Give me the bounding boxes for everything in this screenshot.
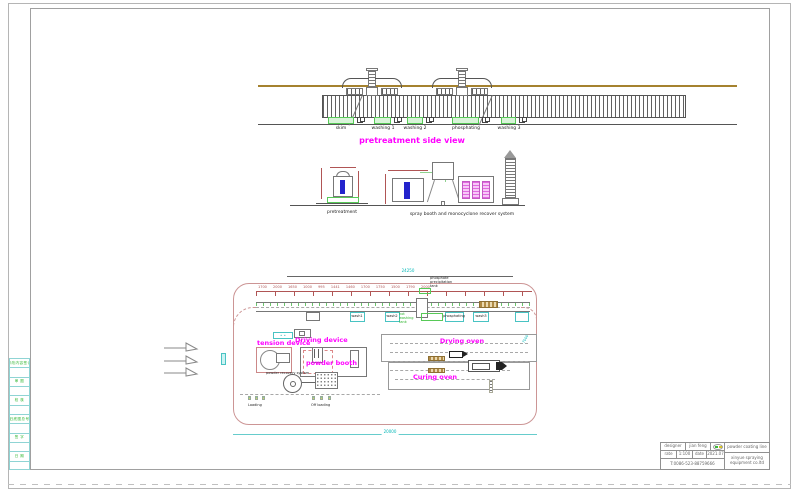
tank-skim <box>328 117 354 124</box>
fan-box <box>366 87 378 96</box>
strip-label: 日 期 <box>10 452 29 461</box>
tank-washing2 <box>407 117 423 124</box>
filter-box <box>471 88 488 95</box>
driving-label: Driving device <box>295 337 348 344</box>
stack-cap <box>366 68 378 71</box>
strip-label: 审 图 <box>10 378 29 387</box>
dim-line-total <box>287 276 513 277</box>
loading-label: Loading <box>248 403 262 407</box>
tank-washing1 <box>374 117 391 124</box>
pump-icon <box>394 117 400 123</box>
filter-box <box>436 88 453 95</box>
phosphate-note: phosphate precipitation tank <box>430 276 452 288</box>
oven-bridge <box>479 301 498 308</box>
reciprocator-hatch <box>314 349 320 358</box>
workpiece-blue <box>340 180 345 194</box>
plan-tank-label: phosphating <box>443 314 465 318</box>
hot-wash-tank-outline <box>421 313 443 321</box>
exhaust-column <box>505 158 516 198</box>
vent-strip <box>489 380 493 393</box>
filter-cartridge <box>462 181 470 199</box>
tank-label: washing 1 <box>372 126 395 131</box>
fan-arrow-icon <box>463 351 468 357</box>
conveyor-curve <box>233 307 257 367</box>
dim-line <box>321 168 322 199</box>
strip-blank <box>10 443 29 452</box>
dim-line <box>330 167 356 168</box>
strip-blank <box>10 462 29 471</box>
loading-conveyor <box>240 394 380 395</box>
recovery-filter-grid <box>315 372 338 389</box>
strip-blank <box>10 406 29 415</box>
duct-arc <box>342 78 369 88</box>
pump-icon <box>426 117 432 123</box>
exhaust-arrow-icon <box>504 150 516 158</box>
burner-box <box>428 356 445 361</box>
dim-total-bottom: 20000 <box>382 430 399 435</box>
strip-blank <box>10 424 29 433</box>
plan-tank-label: wash2 <box>386 314 397 318</box>
dim-line <box>388 170 428 171</box>
company-logo-icon <box>713 444 723 450</box>
strip-blank <box>10 387 29 396</box>
tank-phosphating <box>452 117 479 124</box>
duct-arc <box>432 78 459 88</box>
pump-icon <box>357 117 363 123</box>
filter-cartridge <box>472 181 480 199</box>
drawing-sheet: 修改内容签记 审 图 校 核 旧底图总号 签 字 日 期 skim wash <box>0 0 800 493</box>
strip-label: 旧底图总号 <box>10 415 29 424</box>
hanger-icon <box>262 396 265 400</box>
strip-label: 修改内容签记 <box>10 359 29 368</box>
strip-label: 签 字 <box>10 434 29 443</box>
pump-icon <box>519 117 525 123</box>
ground-line <box>258 124 737 125</box>
phone-cell: T:0086-523-88759666 <box>660 458 725 470</box>
section-label: spray booth and monocyclone recover syst… <box>410 212 514 217</box>
recovery-cyclone-core <box>290 381 296 387</box>
exhaust-base <box>502 198 519 205</box>
logo-yellow-dot <box>719 446 722 448</box>
recovery-duct <box>302 382 315 383</box>
plan-tank-extra <box>515 312 529 322</box>
logo-green-dot <box>715 446 718 448</box>
company-cell: xinyue spraying equipment co.ltd <box>724 452 770 470</box>
tank-label: skim <box>336 126 347 131</box>
offloading-label: Off loading <box>311 403 330 407</box>
plan-tank-label: wash1 <box>351 314 362 318</box>
duct-arc <box>375 78 402 88</box>
bottom-ruler <box>8 484 791 485</box>
oven-fan-inner <box>472 363 490 370</box>
hanger-icon <box>320 396 323 400</box>
strip-blank <box>10 368 29 377</box>
cyclone-top <box>432 162 454 180</box>
filter-box <box>346 88 363 95</box>
hanger-icon <box>328 396 331 400</box>
side-view-title: pretreatment side view <box>359 136 465 145</box>
stack-cap <box>456 68 468 71</box>
workpiece-blue <box>404 182 410 199</box>
hanger-icon <box>312 396 315 400</box>
tank-label: washing 3 <box>498 126 521 131</box>
hanger-icon <box>248 396 251 400</box>
fan-arrow-icon <box>502 362 507 370</box>
roof-line <box>258 85 737 87</box>
burner-box <box>428 368 445 373</box>
drive-station <box>306 312 320 321</box>
hanger-icon <box>255 396 258 400</box>
fan-box <box>456 87 468 96</box>
fan-unit <box>449 351 463 358</box>
filter-cartridge <box>482 181 490 199</box>
flow-arrows-icon <box>163 340 199 378</box>
plan-tank-label: wash3 <box>475 314 486 318</box>
tank-label: washing 2 <box>404 126 427 131</box>
duct-arc <box>465 78 492 88</box>
dim-numbers: 1700 2000 1650 1000 995 1441 1460 1700 1… <box>258 285 534 289</box>
dim-line <box>358 171 359 200</box>
dim-chain <box>256 291 532 296</box>
strip-label: 校 核 <box>10 396 29 405</box>
ground-tick <box>316 203 368 204</box>
cyan-marker <box>221 353 226 365</box>
section-label: pretreatment <box>327 210 357 215</box>
tension-block <box>276 353 290 363</box>
dot-marks-box: • • <box>273 332 293 339</box>
filter-box <box>381 88 398 95</box>
revision-strip: 修改内容签记 审 图 校 核 旧底图总号 签 字 日 期 <box>9 358 30 470</box>
pretreatment-tunnel <box>322 95 686 118</box>
ground-line <box>290 205 525 206</box>
oven-pass-line <box>390 343 528 344</box>
tank-washing3 <box>501 117 516 124</box>
pump-icon <box>482 117 488 123</box>
dim-line <box>385 174 386 204</box>
tank-label: phosphating <box>452 126 480 131</box>
hot-wash-note: hot washing tank <box>399 312 413 324</box>
phosphate-tank-outline <box>419 288 431 294</box>
booth-label: powder booth <box>306 360 357 367</box>
curing-oven <box>388 362 530 390</box>
dim-total-top: 24250 <box>402 269 415 274</box>
curing-oven-label: Curing oven <box>413 374 457 381</box>
drying-oven-label: Drying oven <box>440 338 484 345</box>
